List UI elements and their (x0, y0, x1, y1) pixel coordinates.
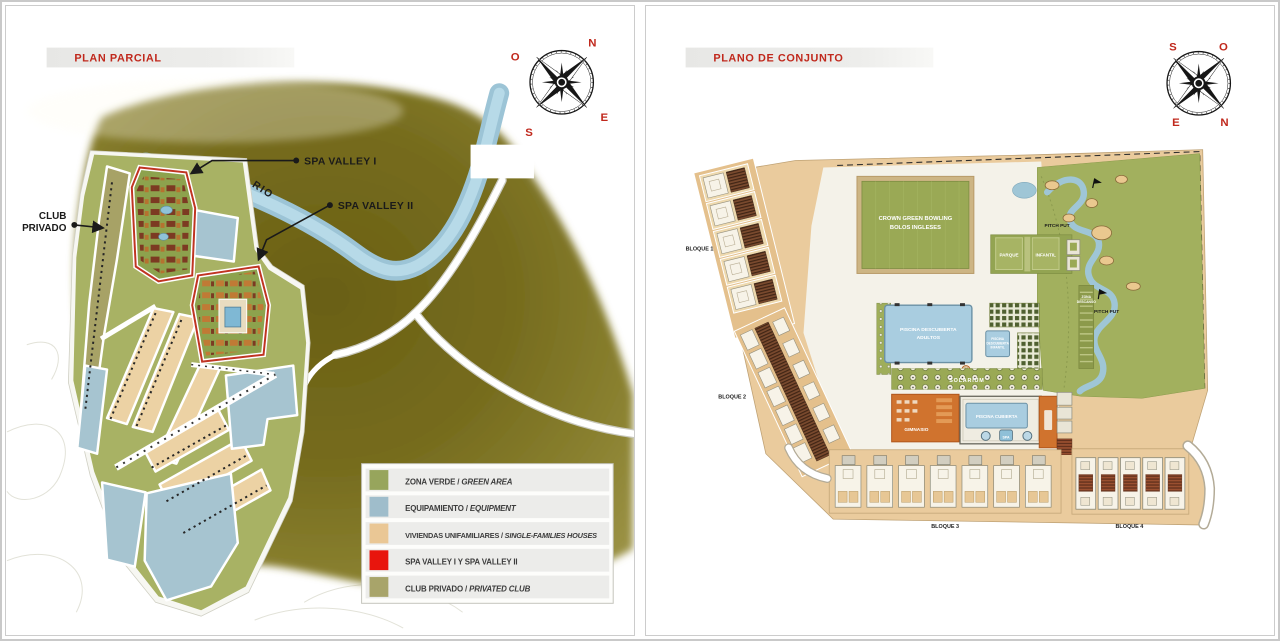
bowling-green: CROWN GREEN BOWLING BOLOS INGLESES (857, 176, 974, 273)
legend-row-zona-verde: ZONA VERDE / GREEN AREA (366, 469, 610, 492)
spa-tub (981, 431, 990, 440)
outdoor-pool-kids: PISCINA DESCUBIERTA INFANTIL (986, 331, 1010, 357)
outdoor-pool-kids-label-line3: INFANTIL (991, 346, 1005, 350)
compass-e: E (600, 112, 608, 124)
block-4-label: BLOQUE 4 (1115, 524, 1143, 530)
golf-pond (1012, 182, 1036, 198)
pergola-lattice (990, 303, 1040, 327)
outdoor-pool-adults-label-line1: PISCINA DESCUBIERTA (900, 327, 957, 333)
outdoor-pool-adults: PISCINA DESCUBIERTA ADULTOS (885, 303, 972, 373)
outdoor-pool-kids-label-line1: PISCINA (991, 337, 1005, 341)
block-1-label: BLOQUE 1 (686, 247, 714, 253)
plan-parcial-panel: RIO (5, 5, 635, 636)
compass-rose: S O E N (1167, 42, 1230, 129)
legend-swatch-zona-verde (370, 470, 389, 490)
bowling-label-line2: BOLOS INGLESES (890, 225, 941, 231)
block-3-label: BLOQUE 3 (931, 524, 959, 530)
svg-text:VIVIENDAS UNIFAMILIARES / SING: VIVIENDAS UNIFAMILIARES / SINGLE-FAMILIE… (405, 531, 597, 540)
playground-label-line1: PARQUE (999, 253, 1018, 258)
spa-valley-1-label: SPA VALLEY I (304, 156, 376, 167)
parcel-spa-valley-1 (132, 167, 195, 281)
svg-text:SPA VALLEY I Y SPA VALLEY II: SPA VALLEY I Y SPA VALLEY II (405, 558, 517, 567)
compass-o: O (1219, 42, 1228, 54)
spa-wing (1039, 396, 1057, 448)
zona-descanso-label-line1: ZONA (1082, 295, 1092, 299)
legend-row-viviendas: VIVIENDAS UNIFAMILIARES / SINGLE-FAMILIE… (366, 522, 610, 545)
legend-swatch-equipamiento (370, 497, 389, 517)
pergola-lattice (1017, 333, 1039, 369)
playground: PARQUE INFANTIL (991, 235, 1072, 274)
compass-s: S (1169, 42, 1177, 54)
spa-label: SPA (1003, 435, 1010, 439)
parcel-spa-valley-2 (192, 267, 268, 362)
pitch-put-label-lower: PITCH PUT (1094, 309, 1119, 315)
parcel-equipment (192, 210, 238, 262)
club-privado-label-line1: CLUB (39, 211, 66, 222)
compass-n: N (588, 38, 596, 50)
bowling-label-line1: CROWN GREEN BOWLING (879, 216, 953, 222)
legend-swatch-club-privado (370, 577, 389, 597)
title-bar: PLAN PARCIAL (47, 48, 295, 68)
outdoor-pool-kids-label-line2: DESCUBIERTA (986, 341, 1009, 345)
svg-text:ZONA VERDE / GREEN AREA: ZONA VERDE / GREEN AREA (405, 477, 513, 486)
title-bar: PLANO DE CONJUNTO (686, 48, 934, 68)
legend-row-equipamiento: EQUIPAMIENTO / EQUIPMENT (366, 495, 610, 518)
block-4 (1072, 449, 1189, 514)
solarium-label: SOLARIUM (949, 378, 984, 384)
svg-text:EQUIPAMIENTO / EQUIPMENT: EQUIPAMIENTO / EQUIPMENT (405, 504, 517, 513)
gym-label: GIMNASIO (904, 427, 928, 433)
gym-building: GIMNASIO (892, 394, 959, 442)
hill-highlight (27, 79, 403, 142)
zona-descanso: ZONA DESCANSO (1077, 285, 1096, 368)
indoor-pool-label: PISCINA CUBIERTA (976, 414, 1018, 419)
pitch-put-area: PITCH PUT PITCH PUT (1012, 154, 1204, 399)
utility-rooms (1057, 392, 1072, 454)
legend-swatch-spa-valley (370, 550, 389, 570)
svg-text:CLUB PRIVADO / PRIVATED CLUB: CLUB PRIVADO / PRIVATED CLUB (405, 584, 530, 593)
blank-label-box (471, 145, 534, 179)
outdoor-pool-adults-label-line2: ADULTOS (917, 335, 941, 341)
plano-conjunto-panel: PITCH PUT PITCH PUT ZONA DESCANSO CROWN … (645, 5, 1275, 636)
legend-row-spa-valley: SPA VALLEY I Y SPA VALLEY II (366, 549, 610, 572)
block-2-label: BLOQUE 2 (718, 394, 746, 400)
legend: ZONA VERDE / GREEN AREA EQUIPAMIENTO / E… (362, 464, 614, 604)
panel-title: PLAN PARCIAL (74, 52, 161, 64)
compass-e: E (1172, 117, 1180, 129)
playground-label-line2: INFANTIL (1035, 253, 1056, 258)
block-3 (829, 450, 1061, 513)
panel-title: PLANO DE CONJUNTO (713, 52, 843, 64)
spa-valley-2-label: SPA VALLEY II (338, 201, 414, 212)
pitch-put-label-upper: PITCH PUT (1045, 223, 1070, 229)
club-privado-label-line2: PRIVADO (22, 223, 67, 234)
compass-o: O (511, 51, 520, 63)
spa-tub (1023, 431, 1032, 440)
compass-s: S (525, 127, 533, 139)
zona-descanso-label-line2: DESCANSO (1077, 300, 1096, 304)
compass-rose: N O E S (511, 38, 609, 139)
compass-n: N (1220, 117, 1228, 129)
indoor-pool-building: PISCINA CUBIERTA SPA (960, 396, 1041, 444)
solarium: SOLARIUM (892, 369, 1043, 390)
legend-row-club-privado: CLUB PRIVADO / PRIVATED CLUB (366, 576, 610, 599)
page-frame: RIO (0, 0, 1280, 641)
legend-swatch-viviendas (370, 524, 389, 544)
